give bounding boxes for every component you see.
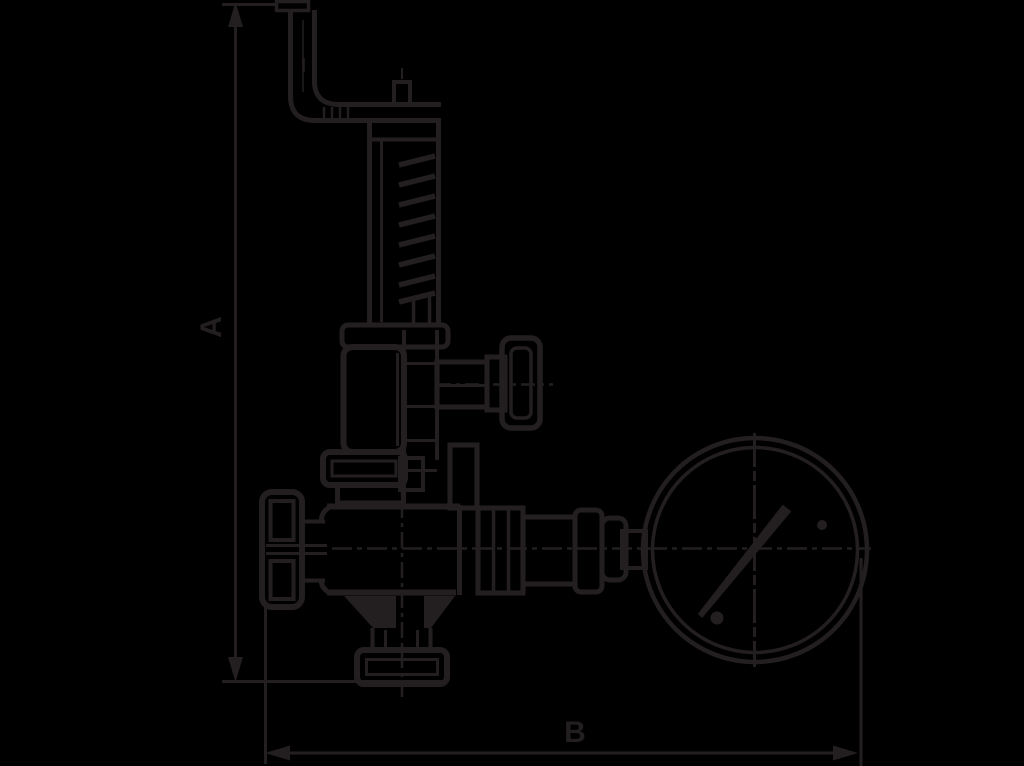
- dim-b-label: B: [564, 716, 586, 749]
- coil-spring: [399, 156, 435, 302]
- pressure-gauge: [643, 433, 867, 667]
- dim-b-arrow-right-icon: [833, 746, 858, 761]
- gauge-needle: [698, 505, 792, 618]
- dim-b-arrow-left-icon: [265, 746, 290, 761]
- stem-column: [400, 330, 477, 508]
- spring-base-flange: [342, 325, 448, 347]
- outlet-cone-left: [344, 596, 396, 628]
- bonnet-flange: [323, 452, 405, 485]
- valve-diagram: A B: [0, 0, 1024, 766]
- gauge-dot-right: [817, 520, 827, 530]
- valve-body: [303, 505, 460, 595]
- handwheel: [262, 492, 327, 607]
- body-yoke: [450, 445, 477, 508]
- vent-pipe: [277, 2, 442, 121]
- adjusting-screw-cap: [394, 68, 410, 104]
- dim-a-arrow-down-icon: [228, 657, 243, 682]
- handwheel-hub: [266, 546, 327, 554]
- tee-handle: [502, 338, 540, 428]
- valve-stem: [303, 522, 325, 581]
- gauge-fittings: [478, 508, 646, 593]
- bonnet: [323, 347, 405, 503]
- vent-pipe-end-cap: [277, 2, 309, 11]
- dim-a-label: A: [195, 316, 228, 338]
- spring-housing: [342, 121, 448, 347]
- side-tap-valve: [437, 338, 553, 428]
- drawing-canvas: A B: [0, 0, 1024, 766]
- gauge-dot-bottom: [711, 612, 724, 625]
- outlet-cone-right: [424, 596, 455, 628]
- union-nut: [575, 510, 602, 592]
